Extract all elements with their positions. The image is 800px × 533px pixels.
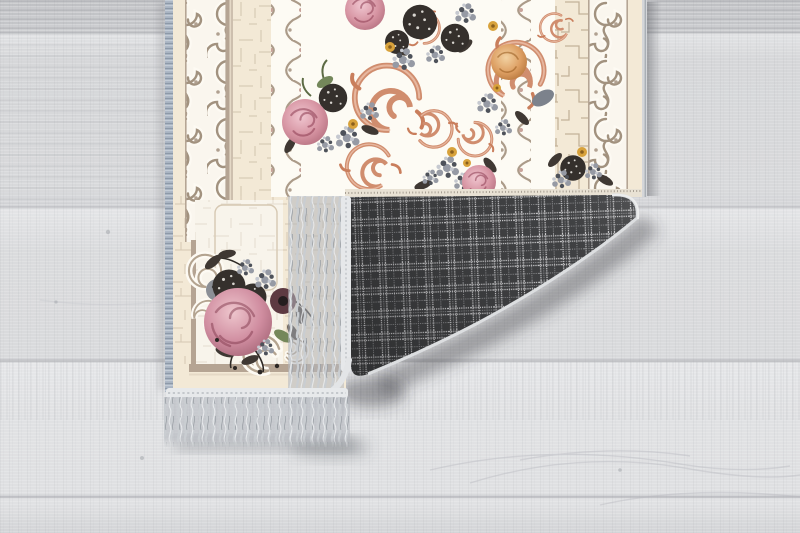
fringe-column-header — [341, 196, 351, 372]
folded-corner — [0, 0, 800, 533]
product-photo — [0, 0, 800, 533]
fringe-bottom — [164, 388, 350, 447]
